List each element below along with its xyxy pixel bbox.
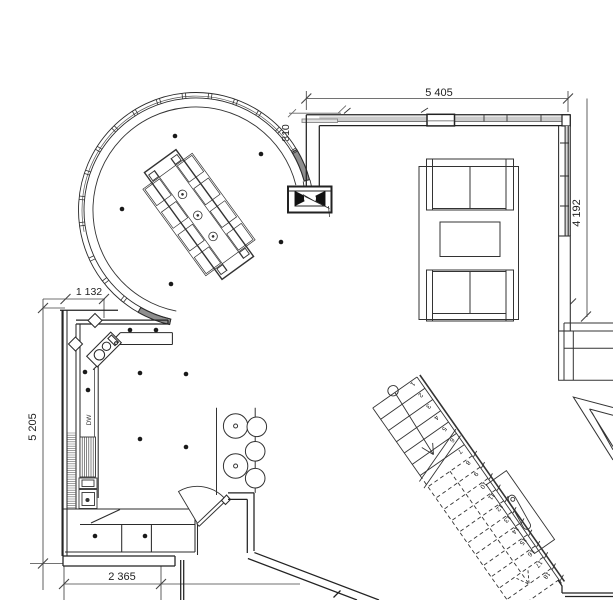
svg-text:1 132: 1 132 <box>76 286 102 298</box>
svg-text:5 205: 5 205 <box>27 413 39 441</box>
svg-text:5 405: 5 405 <box>425 87 453 99</box>
svg-text:DW: DW <box>86 414 93 426</box>
svg-text:4 192: 4 192 <box>571 199 583 227</box>
svg-text:2 365: 2 365 <box>108 571 136 583</box>
